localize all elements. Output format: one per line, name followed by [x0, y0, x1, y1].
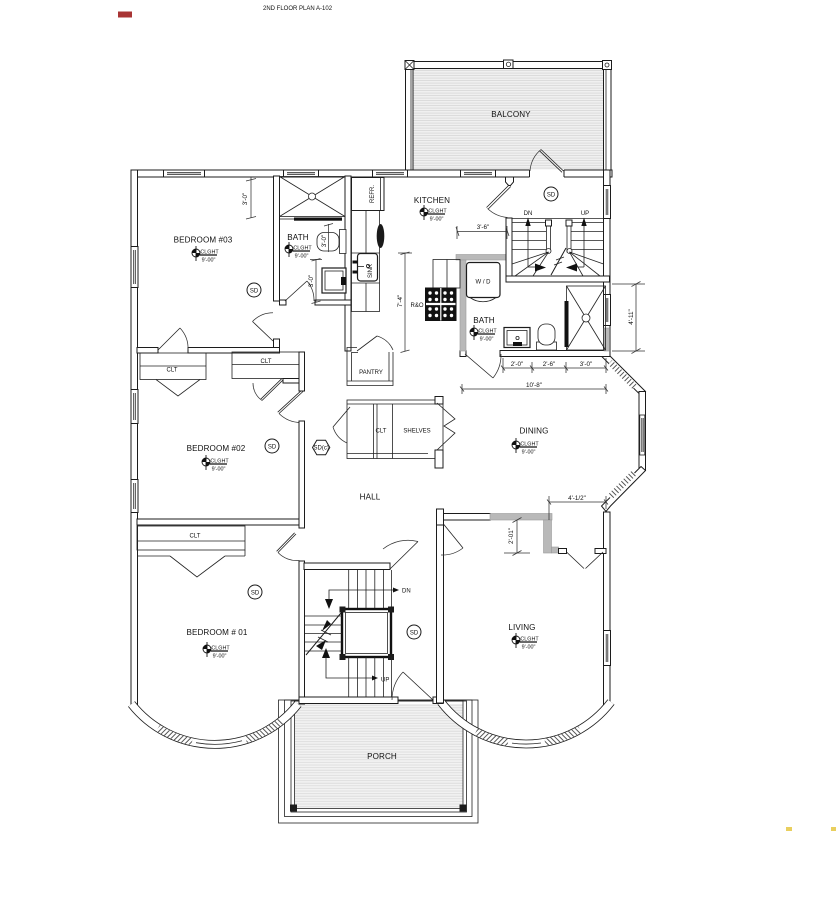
svg-text:9'-00": 9'-00"	[522, 450, 536, 456]
svg-text:9'-00": 9'-00"	[295, 254, 309, 260]
svg-text:SD: SD	[410, 630, 419, 636]
svg-text:2'-0": 2'-0"	[511, 361, 524, 368]
svg-text:SHELVES: SHELVES	[403, 429, 430, 435]
svg-text:3'-0": 3'-0"	[321, 235, 328, 248]
svg-text:DN: DN	[402, 589, 411, 595]
svg-text:3'-0": 3'-0"	[242, 193, 249, 206]
svg-text:CLGHT: CLGHT	[200, 250, 219, 256]
svg-text:PANTRY: PANTRY	[359, 370, 383, 376]
svg-text:CLGHT: CLGHT	[478, 329, 497, 335]
svg-text:HALL: HALL	[360, 493, 381, 502]
svg-text:W / D: W / D	[476, 280, 492, 286]
svg-text:9'-00": 9'-00"	[480, 337, 494, 343]
svg-text:SD: SD	[268, 444, 277, 450]
svg-text:2ND FLOOR PLAN A-102: 2ND FLOOR PLAN A-102	[263, 6, 333, 12]
svg-text:PORCH: PORCH	[367, 752, 397, 761]
svg-text:LIVING: LIVING	[508, 623, 535, 632]
svg-text:SINK: SINK	[368, 264, 374, 278]
svg-text:REFR.: REFR.	[370, 185, 376, 203]
svg-text:3'-0": 3'-0"	[308, 275, 315, 288]
svg-text:BATH: BATH	[287, 233, 308, 242]
svg-text:9'-00": 9'-00"	[430, 217, 444, 223]
svg-text:SD: SD	[547, 192, 556, 198]
svg-text:SD: SD	[250, 288, 259, 294]
svg-text:BEDROOM #03: BEDROOM #03	[174, 236, 233, 245]
svg-text:7'-4": 7'-4"	[397, 295, 404, 308]
svg-text:SD(c): SD(c)	[314, 445, 329, 451]
svg-text:CLT: CLT	[167, 368, 178, 374]
svg-text:BATH: BATH	[473, 316, 494, 325]
svg-text:CLT: CLT	[190, 534, 201, 540]
svg-text:KITCHEN: KITCHEN	[414, 196, 450, 205]
svg-text:10'-8": 10'-8"	[526, 382, 542, 389]
svg-text:DINING: DINING	[520, 427, 549, 436]
svg-text:CLGHT: CLGHT	[520, 637, 539, 643]
svg-text:4'-11": 4'-11"	[628, 309, 635, 325]
svg-text:SD: SD	[251, 590, 260, 596]
svg-text:9'-00": 9'-00"	[202, 258, 216, 264]
svg-text:3'-0": 3'-0"	[580, 361, 593, 368]
svg-text:BEDROOM # 01: BEDROOM # 01	[186, 628, 247, 637]
svg-text:UP: UP	[381, 678, 389, 684]
svg-text:BEDROOM #02: BEDROOM #02	[187, 444, 246, 453]
svg-text:4'-1/2": 4'-1/2"	[568, 495, 586, 502]
svg-text:CLGHT: CLGHT	[293, 246, 312, 252]
svg-text:CLGHT: CLGHT	[428, 209, 447, 215]
svg-text:BALCONY: BALCONY	[491, 110, 531, 119]
svg-text:3'-6": 3'-6"	[477, 224, 490, 231]
svg-text:CLT: CLT	[261, 359, 272, 365]
svg-text:9'-00": 9'-00"	[213, 654, 227, 660]
svg-text:2'-6": 2'-6"	[543, 361, 556, 368]
svg-text:R&O: R&O	[410, 303, 423, 309]
svg-text:2'-01": 2'-01"	[508, 528, 515, 544]
svg-text:DN: DN	[524, 211, 533, 217]
svg-text:UP: UP	[581, 211, 589, 217]
svg-text:9'-00": 9'-00"	[212, 467, 226, 473]
svg-text:CLGHT: CLGHT	[210, 459, 229, 465]
svg-text:CLT: CLT	[376, 429, 387, 435]
svg-text:CLGHT: CLGHT	[520, 442, 539, 448]
svg-text:9'-00": 9'-00"	[522, 645, 536, 651]
svg-text:CLGHT: CLGHT	[211, 646, 230, 652]
